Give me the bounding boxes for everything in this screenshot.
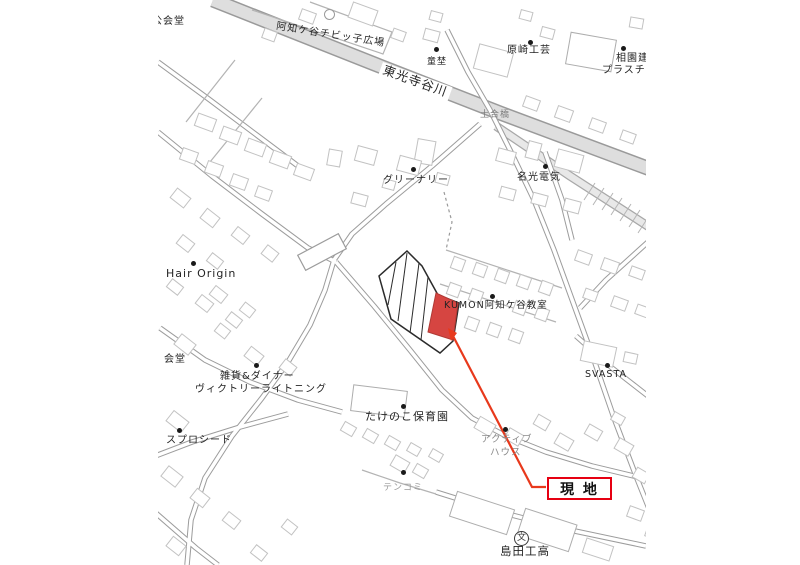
building-footprint (533, 414, 551, 431)
building-footprint (391, 28, 407, 42)
building-footprint (214, 323, 230, 339)
building-footprint (584, 424, 602, 441)
building-footprint (435, 172, 450, 185)
building-footprint (382, 179, 396, 191)
building-footprint (464, 316, 479, 331)
building-footprint (554, 433, 574, 451)
site-label-text: 現 地 (560, 479, 599, 499)
building-footprint (582, 538, 613, 561)
building-footprint (190, 488, 210, 507)
poi-dot (191, 261, 196, 266)
building-footprint (166, 279, 183, 295)
building-footprint (429, 449, 444, 463)
poi-dot (411, 167, 416, 172)
building-footprint (161, 466, 183, 487)
building-footprint (472, 262, 487, 277)
building-footprint (538, 280, 553, 295)
poi-dot (490, 294, 495, 299)
building-footprint (629, 17, 644, 29)
building-footprint (566, 32, 617, 72)
building-footprint (354, 146, 377, 166)
building-footprint (351, 385, 408, 417)
poi-dot (605, 363, 610, 368)
poi-dot (177, 428, 182, 433)
building-footprint (635, 304, 646, 318)
poi-dot (621, 46, 626, 51)
building-footprint (194, 113, 216, 132)
building-footprint (554, 106, 573, 123)
poi-dot (543, 164, 548, 169)
site-label-box: 現 地 (547, 477, 612, 500)
building-footprint (219, 126, 241, 145)
building-footprint (473, 44, 513, 77)
poi-dot (401, 470, 406, 475)
building-footprint (516, 274, 531, 289)
building-footprint (645, 526, 646, 540)
poi-dot (254, 363, 259, 368)
building-footprint (449, 491, 514, 534)
location-map-page: 公会堂阿知ケ谷チビッ子広場東光寺谷川童埜原崎工芸相園建プラスチ土合橋グリーナリー… (0, 0, 800, 565)
poi-dot (401, 404, 406, 409)
building-footprint (589, 118, 607, 133)
building-footprint (627, 506, 645, 521)
poi-dot (528, 40, 533, 45)
building-footprint (512, 300, 527, 315)
building-footprint (340, 421, 356, 436)
building-footprint (261, 245, 279, 262)
site-parcel-cluster (379, 251, 459, 353)
building-footprint (281, 519, 297, 535)
building-footprint (508, 328, 523, 343)
park-symbol-icon (324, 9, 335, 20)
building-footprint (499, 186, 516, 201)
building-footprint (225, 312, 242, 328)
building-footprint (384, 435, 400, 450)
building-footprint (611, 296, 629, 311)
building-footprint (407, 443, 422, 457)
building-footprint (519, 10, 533, 22)
building-footprint (629, 266, 646, 280)
building-footprint (293, 163, 314, 180)
building-footprint (255, 186, 273, 201)
building-footprint (229, 174, 248, 191)
path-dashed (444, 192, 452, 250)
building-footprint (206, 253, 223, 269)
school-symbol-icon: 文 (514, 531, 529, 546)
building-footprint (176, 235, 195, 253)
building-footprint (623, 352, 638, 364)
building-footprint (450, 256, 465, 271)
building-footprint (423, 28, 440, 43)
building-footprint (620, 130, 637, 144)
building-footprint (269, 150, 291, 169)
building-footprint (170, 188, 191, 208)
building-footprint (412, 463, 428, 478)
building-footprint (179, 148, 198, 165)
building-footprint (517, 508, 577, 551)
building-footprint (239, 302, 255, 318)
building-footprint (575, 250, 593, 265)
building-footprint (362, 428, 378, 443)
map-canvas: 公会堂阿知ケ谷チビッ子広場東光寺谷川童埜原崎工芸相園建プラスチ土合橋グリーナリー… (158, 0, 646, 565)
building-footprint (195, 295, 214, 313)
building-footprint (200, 208, 220, 227)
building-footprint (348, 2, 378, 26)
building-footprint (351, 192, 368, 207)
building-footprint (390, 455, 410, 473)
building-footprint (250, 545, 267, 561)
building-footprint (540, 26, 555, 39)
building-footprint (580, 341, 616, 367)
poi-dot (503, 427, 508, 432)
building-footprint (327, 149, 343, 167)
building-footprint (209, 286, 228, 304)
building-footprint (600, 258, 619, 275)
building-footprint (446, 282, 461, 297)
building-footprint (486, 322, 501, 337)
building-footprint (231, 227, 250, 245)
building-footprint (468, 288, 483, 303)
building-footprint (429, 11, 443, 23)
building-footprint (299, 9, 317, 24)
building-footprint (222, 512, 241, 530)
building-footprint (614, 438, 634, 456)
building-footprint (523, 96, 541, 111)
poi-dot (434, 47, 439, 52)
